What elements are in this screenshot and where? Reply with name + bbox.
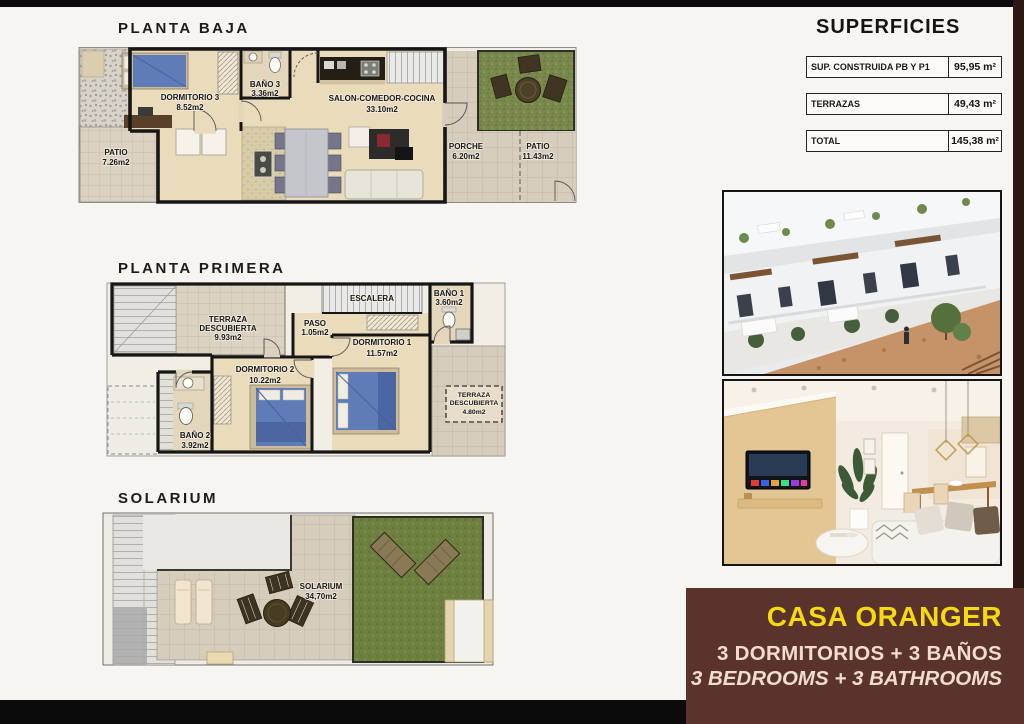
svg-text:3.92m2: 3.92m2 bbox=[181, 441, 209, 450]
planta-baja-floorplan: DORMITORIO 3 8.52m2 BAÑO 3 3.36m2 SALON-… bbox=[78, 43, 578, 206]
svg-text:3.36m2: 3.36m2 bbox=[251, 89, 279, 98]
side-structure bbox=[445, 600, 493, 662]
superficies-row: TERRAZAS 49,43 m² bbox=[806, 93, 1002, 115]
svg-text:8.52m2: 8.52m2 bbox=[176, 103, 204, 112]
right-edge-strip bbox=[1013, 0, 1024, 592]
bano3-label: BAÑO 3 bbox=[250, 80, 281, 89]
superficies-row: SUP. CONSTRUIDA PB Y P1 95,95 m² bbox=[806, 56, 1002, 78]
exterior-render-photo bbox=[722, 190, 1002, 376]
svg-text:11.57m2: 11.57m2 bbox=[366, 349, 398, 358]
superficies-row-label: TOTAL bbox=[807, 131, 949, 151]
solarium-title: SOLARIUM bbox=[118, 490, 218, 507]
salon-label: SALON-COMEDOR-COCINA bbox=[329, 94, 436, 103]
superficies-row-value: 145,38 m² bbox=[949, 131, 1001, 151]
superficies-row-value: 49,43 m² bbox=[949, 94, 1001, 114]
brand-line-spanish: 3 DORMITORIOS + 3 BAÑOS bbox=[686, 642, 1002, 666]
svg-text:1.05m2: 1.05m2 bbox=[301, 328, 329, 337]
solarium-floorplan: SOLARIUM 34,70m2 bbox=[95, 510, 505, 668]
kitchen-counter-icon bbox=[320, 57, 385, 85]
solarium-label: SOLARIUM bbox=[300, 582, 343, 591]
svg-text:DESCUBIERTA: DESCUBIERTA bbox=[450, 400, 499, 407]
svg-text:7.26m2: 7.26m2 bbox=[102, 158, 130, 167]
brand-panel: CASA ORANGER 3 DORMITORIOS + 3 BAÑOS 3 B… bbox=[686, 588, 1024, 724]
wardrobe-icon bbox=[218, 52, 238, 94]
planta-baja-title: PLANTA BAJA bbox=[118, 20, 250, 37]
svg-text:33.10m2: 33.10m2 bbox=[366, 105, 398, 114]
closet-icon bbox=[367, 315, 418, 330]
wardrobe-icon bbox=[214, 376, 231, 424]
superficies-title: SUPERFICIES bbox=[816, 16, 1002, 39]
superficies-panel: SUPERFICIES SUP. CONSTRUIDA PB Y P1 95,9… bbox=[806, 16, 1002, 167]
superficies-row-label: TERRAZAS bbox=[807, 94, 949, 114]
escalera-label: ESCALERA bbox=[350, 294, 394, 303]
roof-below-dashed-area bbox=[108, 386, 158, 454]
dormitorio2-label: DORMITORIO 2 bbox=[236, 365, 295, 374]
top-black-bar bbox=[0, 0, 1024, 7]
bed-icon bbox=[250, 385, 312, 449]
tv-icon bbox=[746, 451, 810, 489]
dormitorio3-label: DORMITORIO 3 bbox=[161, 93, 220, 102]
patio-izq-label: PATIO bbox=[104, 148, 127, 157]
stairs-icon bbox=[387, 52, 444, 83]
room-labels: SOLARIUM 34,70m2 bbox=[300, 582, 343, 601]
svg-text:10.22m2: 10.22m2 bbox=[249, 376, 281, 385]
interior-render-photo bbox=[722, 379, 1002, 566]
terraza-label: TERRAZA bbox=[209, 315, 247, 324]
porche-label: PORCHE bbox=[449, 142, 484, 151]
planta-primera-floorplan: TERRAZA DESCUBIERTA 9.93m2 ESCALERA BAÑO… bbox=[78, 282, 508, 457]
planta-primera-title: PLANTA PRIMERA bbox=[118, 260, 286, 277]
terraza2-label: TERRAZA bbox=[458, 392, 491, 399]
svg-text:9.93m2: 9.93m2 bbox=[214, 333, 242, 342]
superficies-row-label: SUP. CONSTRUIDA PB Y P1 bbox=[807, 57, 949, 77]
bano1-label: BAÑO 1 bbox=[434, 289, 465, 298]
superficies-row: TOTAL 145,38 m² bbox=[806, 130, 1002, 152]
superficies-row-value: 95,95 m² bbox=[949, 57, 1001, 77]
svg-text:6.20m2: 6.20m2 bbox=[452, 152, 480, 161]
patio-der-label: PATIO bbox=[526, 142, 549, 151]
brand-line-english: 3 BEDROOMS + 3 BATHROOMS bbox=[686, 667, 1002, 691]
coffee-table-icon bbox=[816, 529, 868, 557]
svg-text:4.80m2: 4.80m2 bbox=[462, 409, 485, 416]
person-icon bbox=[904, 327, 909, 345]
svg-text:3.60m2: 3.60m2 bbox=[435, 298, 463, 307]
brochure-page: PLANTA BAJA bbox=[0, 0, 1024, 724]
dormitorio1-label: DORMITORIO 1 bbox=[353, 338, 412, 347]
svg-text:DESCUBIERTA: DESCUBIERTA bbox=[199, 324, 256, 333]
dining-table-icon bbox=[275, 129, 341, 197]
svg-text:34,70m2: 34,70m2 bbox=[305, 592, 337, 601]
paso-label: PASO bbox=[304, 319, 326, 328]
bano2-label: BAÑO 2 bbox=[180, 431, 211, 440]
bed-icon bbox=[333, 368, 399, 434]
brand-name: CASA ORANGER bbox=[686, 601, 1002, 633]
svg-text:11.43m2: 11.43m2 bbox=[522, 152, 554, 161]
bed-icon bbox=[122, 53, 188, 89]
